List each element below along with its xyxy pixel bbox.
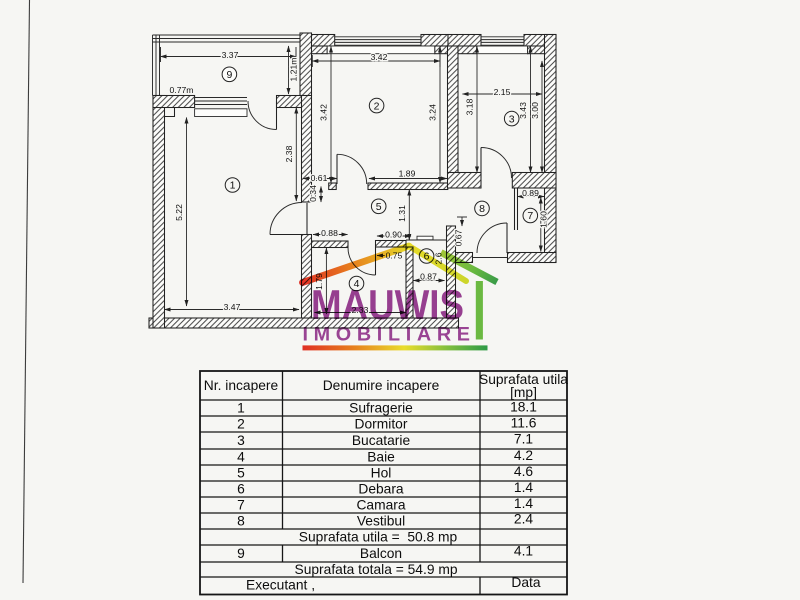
svg-text:4.2: 4.2 <box>514 448 533 463</box>
svg-text:3.42: 3.42 <box>371 52 388 62</box>
svg-text:5: 5 <box>237 466 245 481</box>
svg-text:7.1: 7.1 <box>514 432 533 447</box>
svg-text:MAUWIS: MAUWIS <box>311 281 464 328</box>
svg-text:0.88: 0.88 <box>321 228 338 238</box>
svg-text:3.00: 3.00 <box>530 102 540 119</box>
svg-text:1.31: 1.31 <box>397 205 407 222</box>
svg-text:Baie: Baie <box>367 450 395 465</box>
svg-text:Executant ,: Executant , <box>246 578 315 593</box>
svg-text:2.15: 2.15 <box>494 87 511 97</box>
svg-text:9: 9 <box>237 546 245 561</box>
svg-text:6: 6 <box>237 482 245 497</box>
svg-text:4: 4 <box>237 450 245 465</box>
svg-text:5.22: 5.22 <box>174 204 184 221</box>
svg-text:4.6: 4.6 <box>514 464 534 479</box>
svg-text:1.21m: 1.21m <box>289 58 299 82</box>
svg-text:1: 1 <box>237 401 245 416</box>
svg-text:11.6: 11.6 <box>511 416 537 431</box>
svg-text:2: 2 <box>374 100 380 112</box>
svg-text:8: 8 <box>479 203 485 215</box>
svg-text:1: 1 <box>230 180 236 192</box>
svg-text:Balcon: Balcon <box>360 546 402 561</box>
svg-text:Sufragerie: Sufragerie <box>349 401 413 416</box>
svg-text:7: 7 <box>527 210 533 222</box>
svg-text:0.90: 0.90 <box>385 230 402 240</box>
svg-text:5: 5 <box>376 201 382 213</box>
svg-text:0.61: 0.61 <box>311 173 328 183</box>
svg-text:Suprafata utila = 50.8 mp: Suprafata utila = 50.8 mp <box>299 530 458 545</box>
svg-text:1.4: 1.4 <box>514 480 534 495</box>
svg-text:2.4: 2.4 <box>514 512 534 527</box>
svg-text:0.87: 0.87 <box>420 271 437 281</box>
svg-text:[mp]: [mp] <box>510 385 537 400</box>
svg-text:4.1: 4.1 <box>514 544 533 559</box>
svg-text:0.34: 0.34 <box>308 185 318 202</box>
svg-text:9: 9 <box>226 69 232 81</box>
svg-text:7: 7 <box>237 498 245 513</box>
svg-text:18.1: 18.1 <box>510 400 537 415</box>
svg-text:0.89: 0.89 <box>522 188 539 198</box>
svg-text:3.24: 3.24 <box>428 104 438 121</box>
svg-text:3.18: 3.18 <box>465 98 475 115</box>
svg-text:2.38: 2.38 <box>284 145 294 162</box>
svg-text:1.60: 1.60 <box>539 211 549 228</box>
svg-text:Bucatarie: Bucatarie <box>352 433 411 448</box>
svg-text:Vestibul: Vestibul <box>357 514 405 529</box>
svg-text:Dormitor: Dormitor <box>355 417 408 432</box>
svg-text:8: 8 <box>237 514 245 529</box>
svg-text:1.89: 1.89 <box>399 169 416 179</box>
svg-text:3: 3 <box>509 113 515 125</box>
svg-text:3.43: 3.43 <box>518 102 528 119</box>
svg-text:Denumire incapere: Denumire incapere <box>323 378 440 393</box>
svg-text:Camara: Camara <box>356 498 405 513</box>
svg-text:3: 3 <box>237 433 245 448</box>
svg-text:Suprafata totala = 54.9 mp: Suprafata totala = 54.9 mp <box>295 562 458 577</box>
svg-text:3.42: 3.42 <box>319 104 329 121</box>
svg-text:2: 2 <box>237 417 245 432</box>
svg-text:3.37: 3.37 <box>222 50 239 60</box>
svg-text:Hol: Hol <box>371 466 392 481</box>
svg-text:0.77m: 0.77m <box>170 85 194 95</box>
svg-text:0.67: 0.67 <box>454 229 464 246</box>
svg-text:Debara: Debara <box>358 482 404 497</box>
svg-text:Data: Data <box>511 575 540 590</box>
svg-text:1.4: 1.4 <box>514 496 534 511</box>
svg-text:3.47: 3.47 <box>224 302 241 312</box>
svg-text:Nr. incapere: Nr. incapere <box>204 378 279 393</box>
